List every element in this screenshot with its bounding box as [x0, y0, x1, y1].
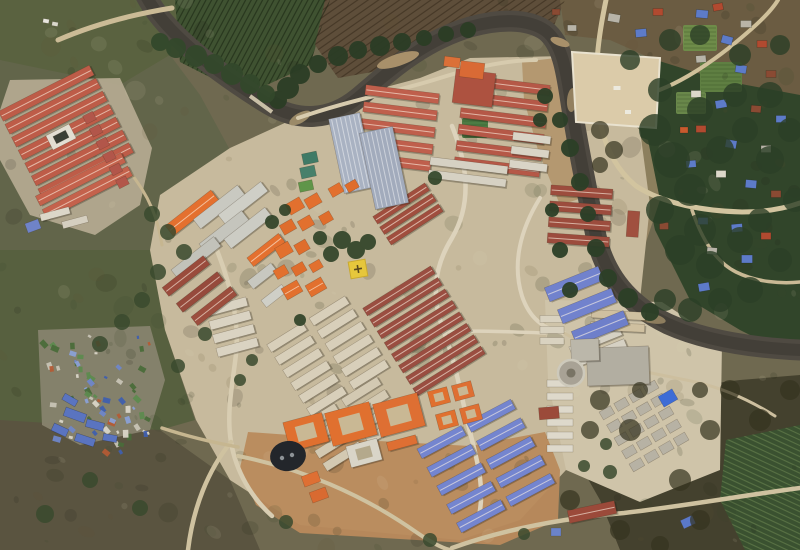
vehicle [625, 110, 631, 114]
gray-wing [571, 338, 601, 363]
village-house [757, 41, 767, 48]
helipad [348, 259, 368, 279]
east-darkred-vertical [626, 211, 640, 238]
village-house [745, 180, 757, 189]
village-house [552, 9, 560, 15]
village-house [741, 21, 752, 28]
village-house [680, 127, 688, 133]
village-house [696, 55, 707, 63]
village-house [635, 29, 647, 38]
village-house [696, 126, 706, 133]
container-rows-gray-nw [540, 316, 564, 345]
scrap-item [50, 402, 57, 407]
blue-small-se-b [551, 528, 561, 536]
satellite-image [0, 0, 800, 550]
village-house [698, 282, 710, 292]
village-house [653, 9, 663, 16]
village-house [716, 171, 726, 178]
scrap-item [49, 366, 54, 372]
village-house [691, 91, 701, 98]
scrap-item [139, 412, 145, 420]
scrap-item [137, 336, 140, 339]
village-house [607, 13, 620, 23]
village-house [751, 105, 762, 113]
scrap-item [126, 406, 131, 413]
north-orange-a [459, 61, 485, 80]
village-house [766, 71, 776, 78]
satellite-scene-canvas [0, 0, 800, 550]
scrap-item [94, 352, 97, 354]
red-sw-of-gray [539, 406, 560, 420]
car-top-left-a [43, 19, 50, 24]
village-house [742, 255, 753, 263]
scrap-item [143, 431, 147, 437]
car-top-left-b [52, 22, 59, 27]
vehicle [614, 86, 621, 90]
village-house [568, 25, 577, 31]
east-white-rows [509, 132, 553, 174]
scrap-item [76, 374, 79, 378]
scrap-item [123, 430, 129, 438]
scrap-item [70, 343, 75, 350]
village-house [712, 3, 723, 12]
north-orange-b [443, 56, 460, 68]
scrap-item [77, 354, 83, 359]
village-house [771, 191, 781, 198]
village-house [761, 233, 771, 240]
village-house [696, 9, 709, 18]
scrap-item [79, 367, 83, 373]
